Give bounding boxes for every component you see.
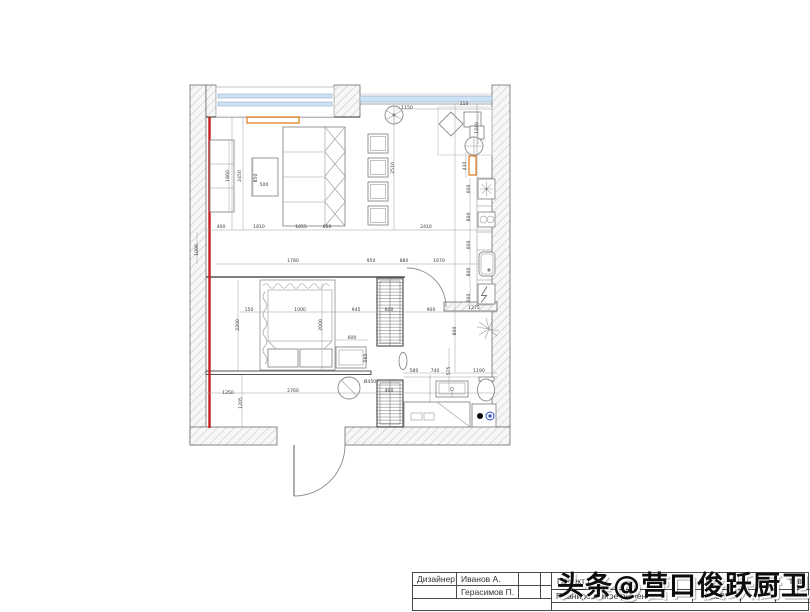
dimension-label: 2760	[287, 388, 299, 394]
dimension-label: 600	[466, 241, 472, 250]
dimension-label: 400	[217, 224, 226, 230]
bathroom-fixtures	[404, 377, 496, 427]
dimension-label: 600	[323, 224, 332, 230]
vent-hob-icon	[478, 179, 495, 199]
pillow-2	[300, 349, 332, 367]
dimension-label: 600	[385, 307, 394, 313]
empty-cell	[552, 603, 810, 610]
floor-plan-svg: 4001810105560024101780950880167015010009…	[0, 0, 810, 612]
dimension-label: 945	[352, 307, 361, 313]
kitchen-window-glass	[360, 96, 492, 102]
dimension-label: 800	[466, 213, 472, 222]
orange-lintel	[247, 117, 299, 123]
furniture-bedroom	[260, 278, 407, 427]
dimension-label: 1810	[253, 224, 265, 230]
furniture-living	[210, 106, 492, 226]
dimension-label: 1275	[468, 305, 480, 311]
dimension-label: 800	[452, 327, 458, 336]
wall-bedroom-bottom	[206, 371, 371, 375]
dimension-label: 430	[462, 162, 468, 171]
empty-cell	[519, 586, 541, 599]
watermark-text: 头条@营口俊跃厨卫	[557, 564, 809, 603]
boiler-lightning-icon	[478, 284, 495, 304]
dimension-label: 1250	[222, 390, 234, 396]
bathtub	[404, 402, 470, 427]
designer-name-1-cell: Иванов А.	[457, 573, 519, 586]
wall-pier-top-left	[206, 85, 216, 117]
dimension-label: 150	[245, 307, 254, 313]
wall-pier-top-mid	[334, 85, 360, 117]
dimension-label: 580	[410, 368, 419, 374]
dimension-label: 2510	[390, 162, 396, 174]
dimension-label: 600	[466, 294, 472, 303]
dimension-label: 1055	[295, 224, 307, 230]
dimension-label: 1000	[294, 307, 306, 313]
dimension-label: 575	[446, 367, 452, 376]
dimension-label: 900	[427, 307, 436, 313]
dimension-label: 2450	[237, 170, 243, 182]
dimension-label: Ø450	[364, 378, 376, 385]
dimension-label: 800	[466, 268, 472, 277]
dimension-label: 1780	[287, 258, 299, 264]
dimension-label: 740	[431, 368, 440, 374]
designer-label-cell: Дизайнер	[413, 573, 457, 586]
dimension-label: 2200	[235, 319, 241, 331]
sink-icon	[479, 252, 495, 276]
dimension-label: 1090	[194, 244, 200, 256]
wardrobe-lower	[377, 380, 403, 427]
dimension-label: 850	[253, 174, 259, 183]
sofa-bed	[283, 127, 345, 226]
round-stool	[338, 377, 360, 399]
chair-diamond	[439, 112, 463, 136]
dimension-label: 950	[367, 258, 376, 264]
bedside-table	[336, 347, 366, 368]
mirror	[399, 353, 407, 370]
wall-bottom-right	[345, 427, 510, 445]
empty-cell	[541, 586, 552, 599]
dimension-label: 1860	[225, 170, 231, 182]
dimension-label: 600	[348, 335, 357, 341]
dimension-label: 500	[260, 182, 269, 188]
burners-icon	[478, 212, 495, 227]
wall-left	[190, 85, 206, 445]
dimension-label: 2410	[420, 224, 432, 230]
dimension-label: 1205	[238, 397, 244, 409]
balcony-window-glass-1	[218, 94, 332, 98]
empty-cell	[519, 573, 541, 586]
washbasin	[436, 381, 468, 397]
dimension-label: 110	[460, 101, 469, 107]
stool-row	[368, 134, 388, 225]
empty-cell	[541, 573, 552, 586]
designer-name-2-cell: Герасимов П.	[457, 586, 519, 599]
entry-door-arc	[294, 445, 345, 496]
washing-machine	[472, 404, 496, 427]
balcony-window-glass-2	[218, 102, 332, 106]
dimension-label: 2000	[318, 319, 324, 331]
pillow-1	[268, 349, 298, 367]
dimension-label: 600	[466, 185, 472, 194]
dimension-label: 1240	[474, 122, 480, 134]
interior-door-arc	[407, 268, 446, 307]
dimension-label: 880	[400, 258, 409, 264]
wall-bottom-left	[190, 427, 277, 445]
dimension-label: 400	[385, 388, 394, 394]
dimension-label: 1190	[473, 368, 485, 374]
dimension-label: 1670	[433, 258, 445, 264]
empty-cell	[413, 599, 552, 610]
empty-cell	[413, 586, 457, 599]
dimension-label: 1150	[401, 105, 413, 111]
dining-set	[438, 107, 492, 155]
toilet	[478, 377, 495, 401]
orange-radiator	[469, 156, 476, 175]
dimension-label: 565	[363, 354, 369, 363]
